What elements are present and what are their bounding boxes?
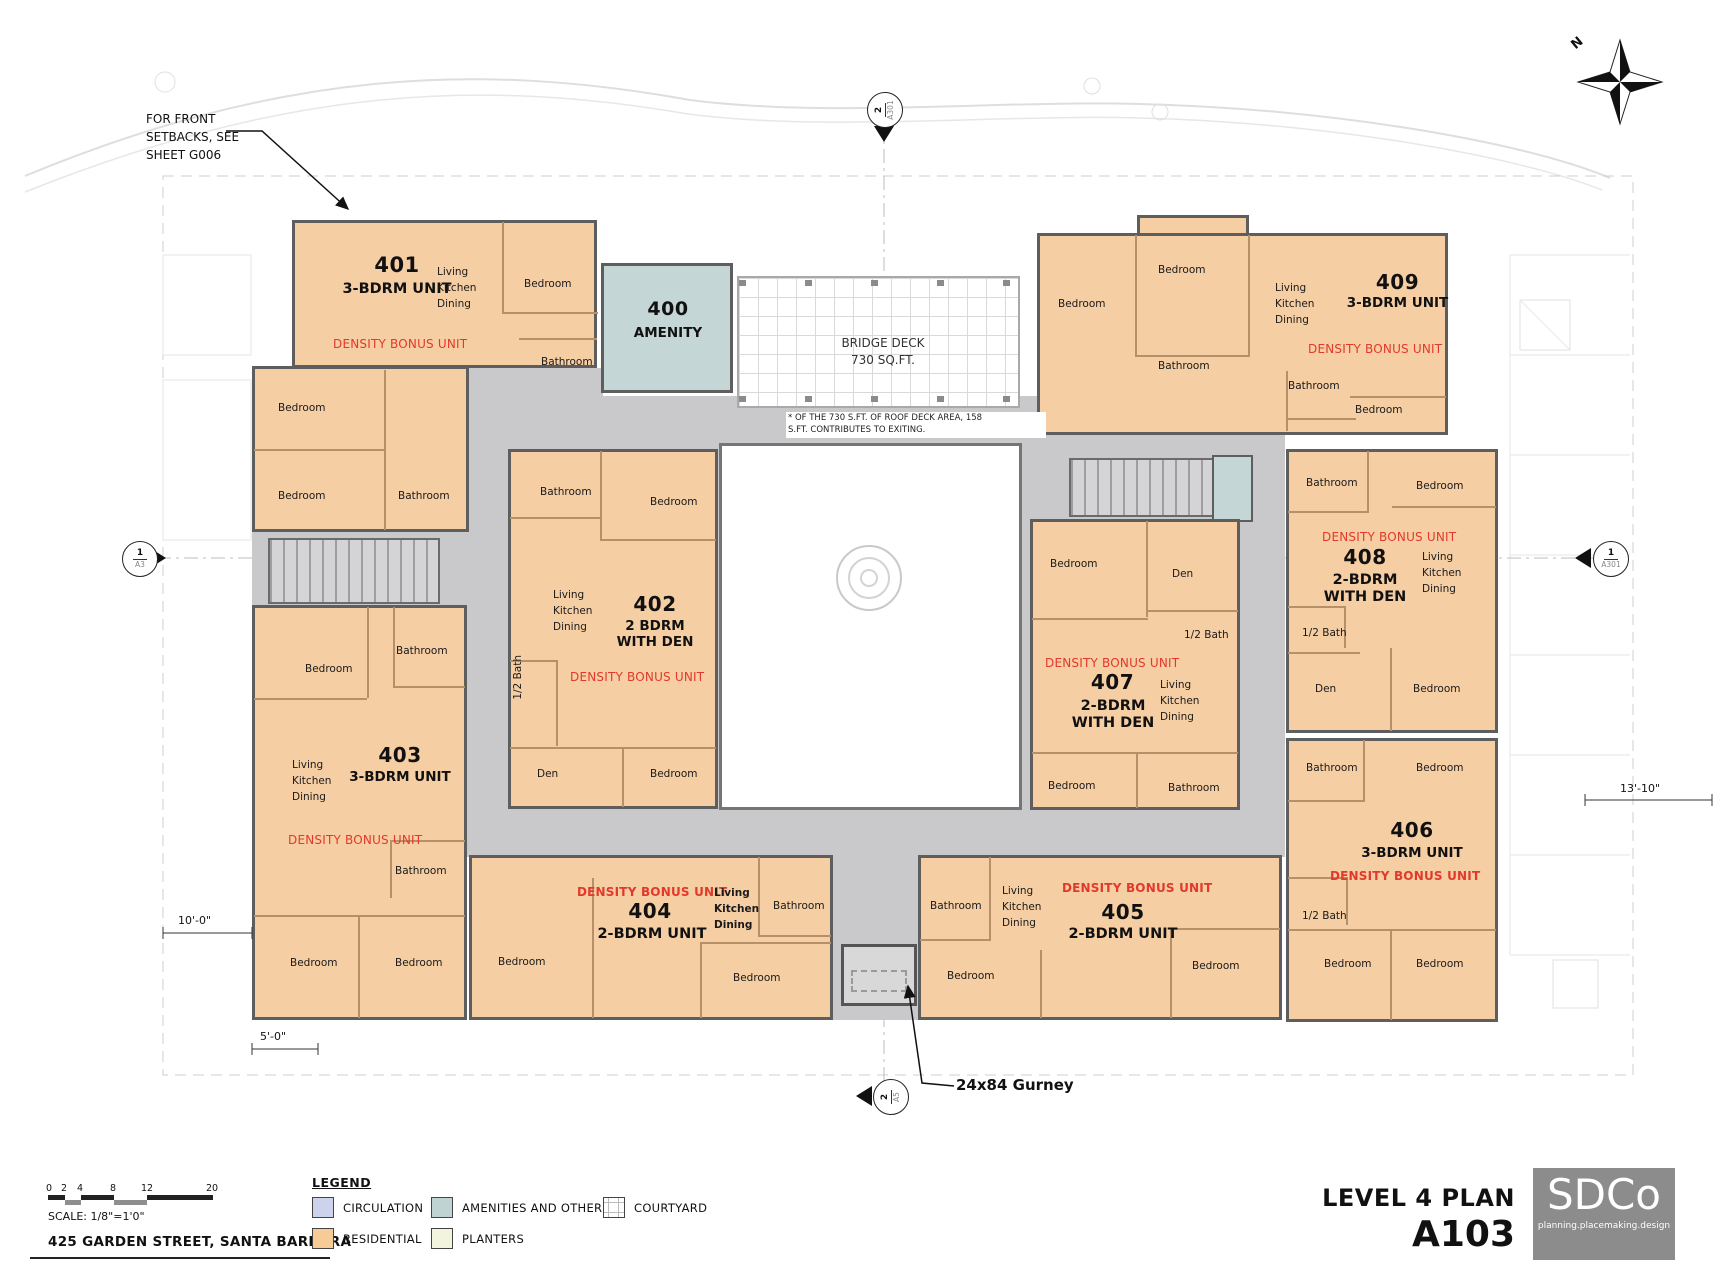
section-number: 1 xyxy=(133,548,147,560)
section-cut-icon xyxy=(1575,548,1591,568)
section-number: 2 xyxy=(880,1090,892,1104)
section-marker-right: 1 A301 xyxy=(1593,541,1629,577)
section-cut-icon xyxy=(856,1086,872,1106)
section-number: 1 xyxy=(1604,548,1618,560)
north-arrow-icon xyxy=(1560,28,1680,138)
section-sheet: A301 xyxy=(886,100,896,119)
section-marker-bottom: 2 A5 xyxy=(873,1079,909,1115)
section-sheet: A301 xyxy=(1601,560,1620,570)
section-marker-left: 1 A3 xyxy=(122,541,158,577)
floor-plan-sheet: 401 3-BDRM UNIT Living Kitchen Dining Be… xyxy=(0,0,1722,1288)
section-cut-icon xyxy=(874,126,894,142)
section-sheet: A5 xyxy=(892,1092,902,1102)
section-marker-top: 2 A301 xyxy=(867,92,903,128)
section-number: 2 xyxy=(874,103,886,117)
section-sheet: A3 xyxy=(135,560,145,570)
